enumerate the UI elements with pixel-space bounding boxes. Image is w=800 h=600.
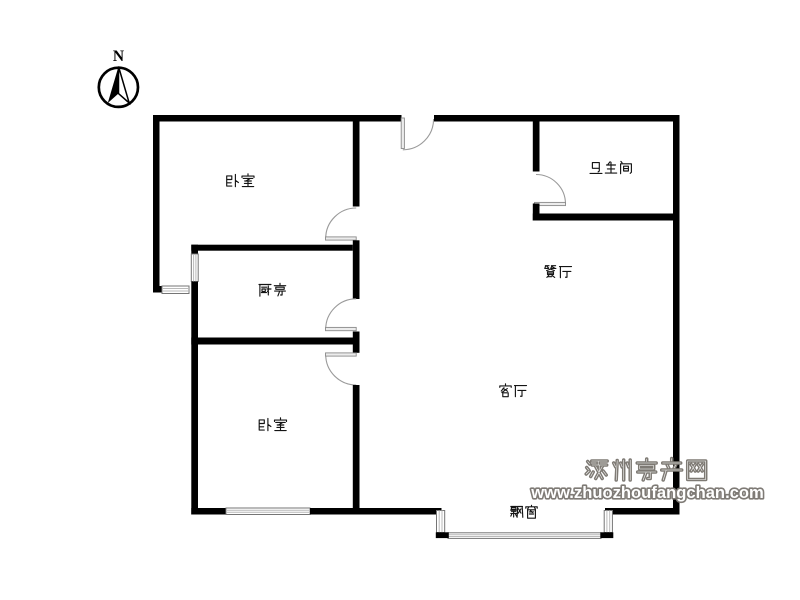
svg-text:www.zhuozhoufangchan.com: www.zhuozhoufangchan.com bbox=[530, 483, 764, 502]
svg-text:N: N bbox=[113, 48, 124, 65]
